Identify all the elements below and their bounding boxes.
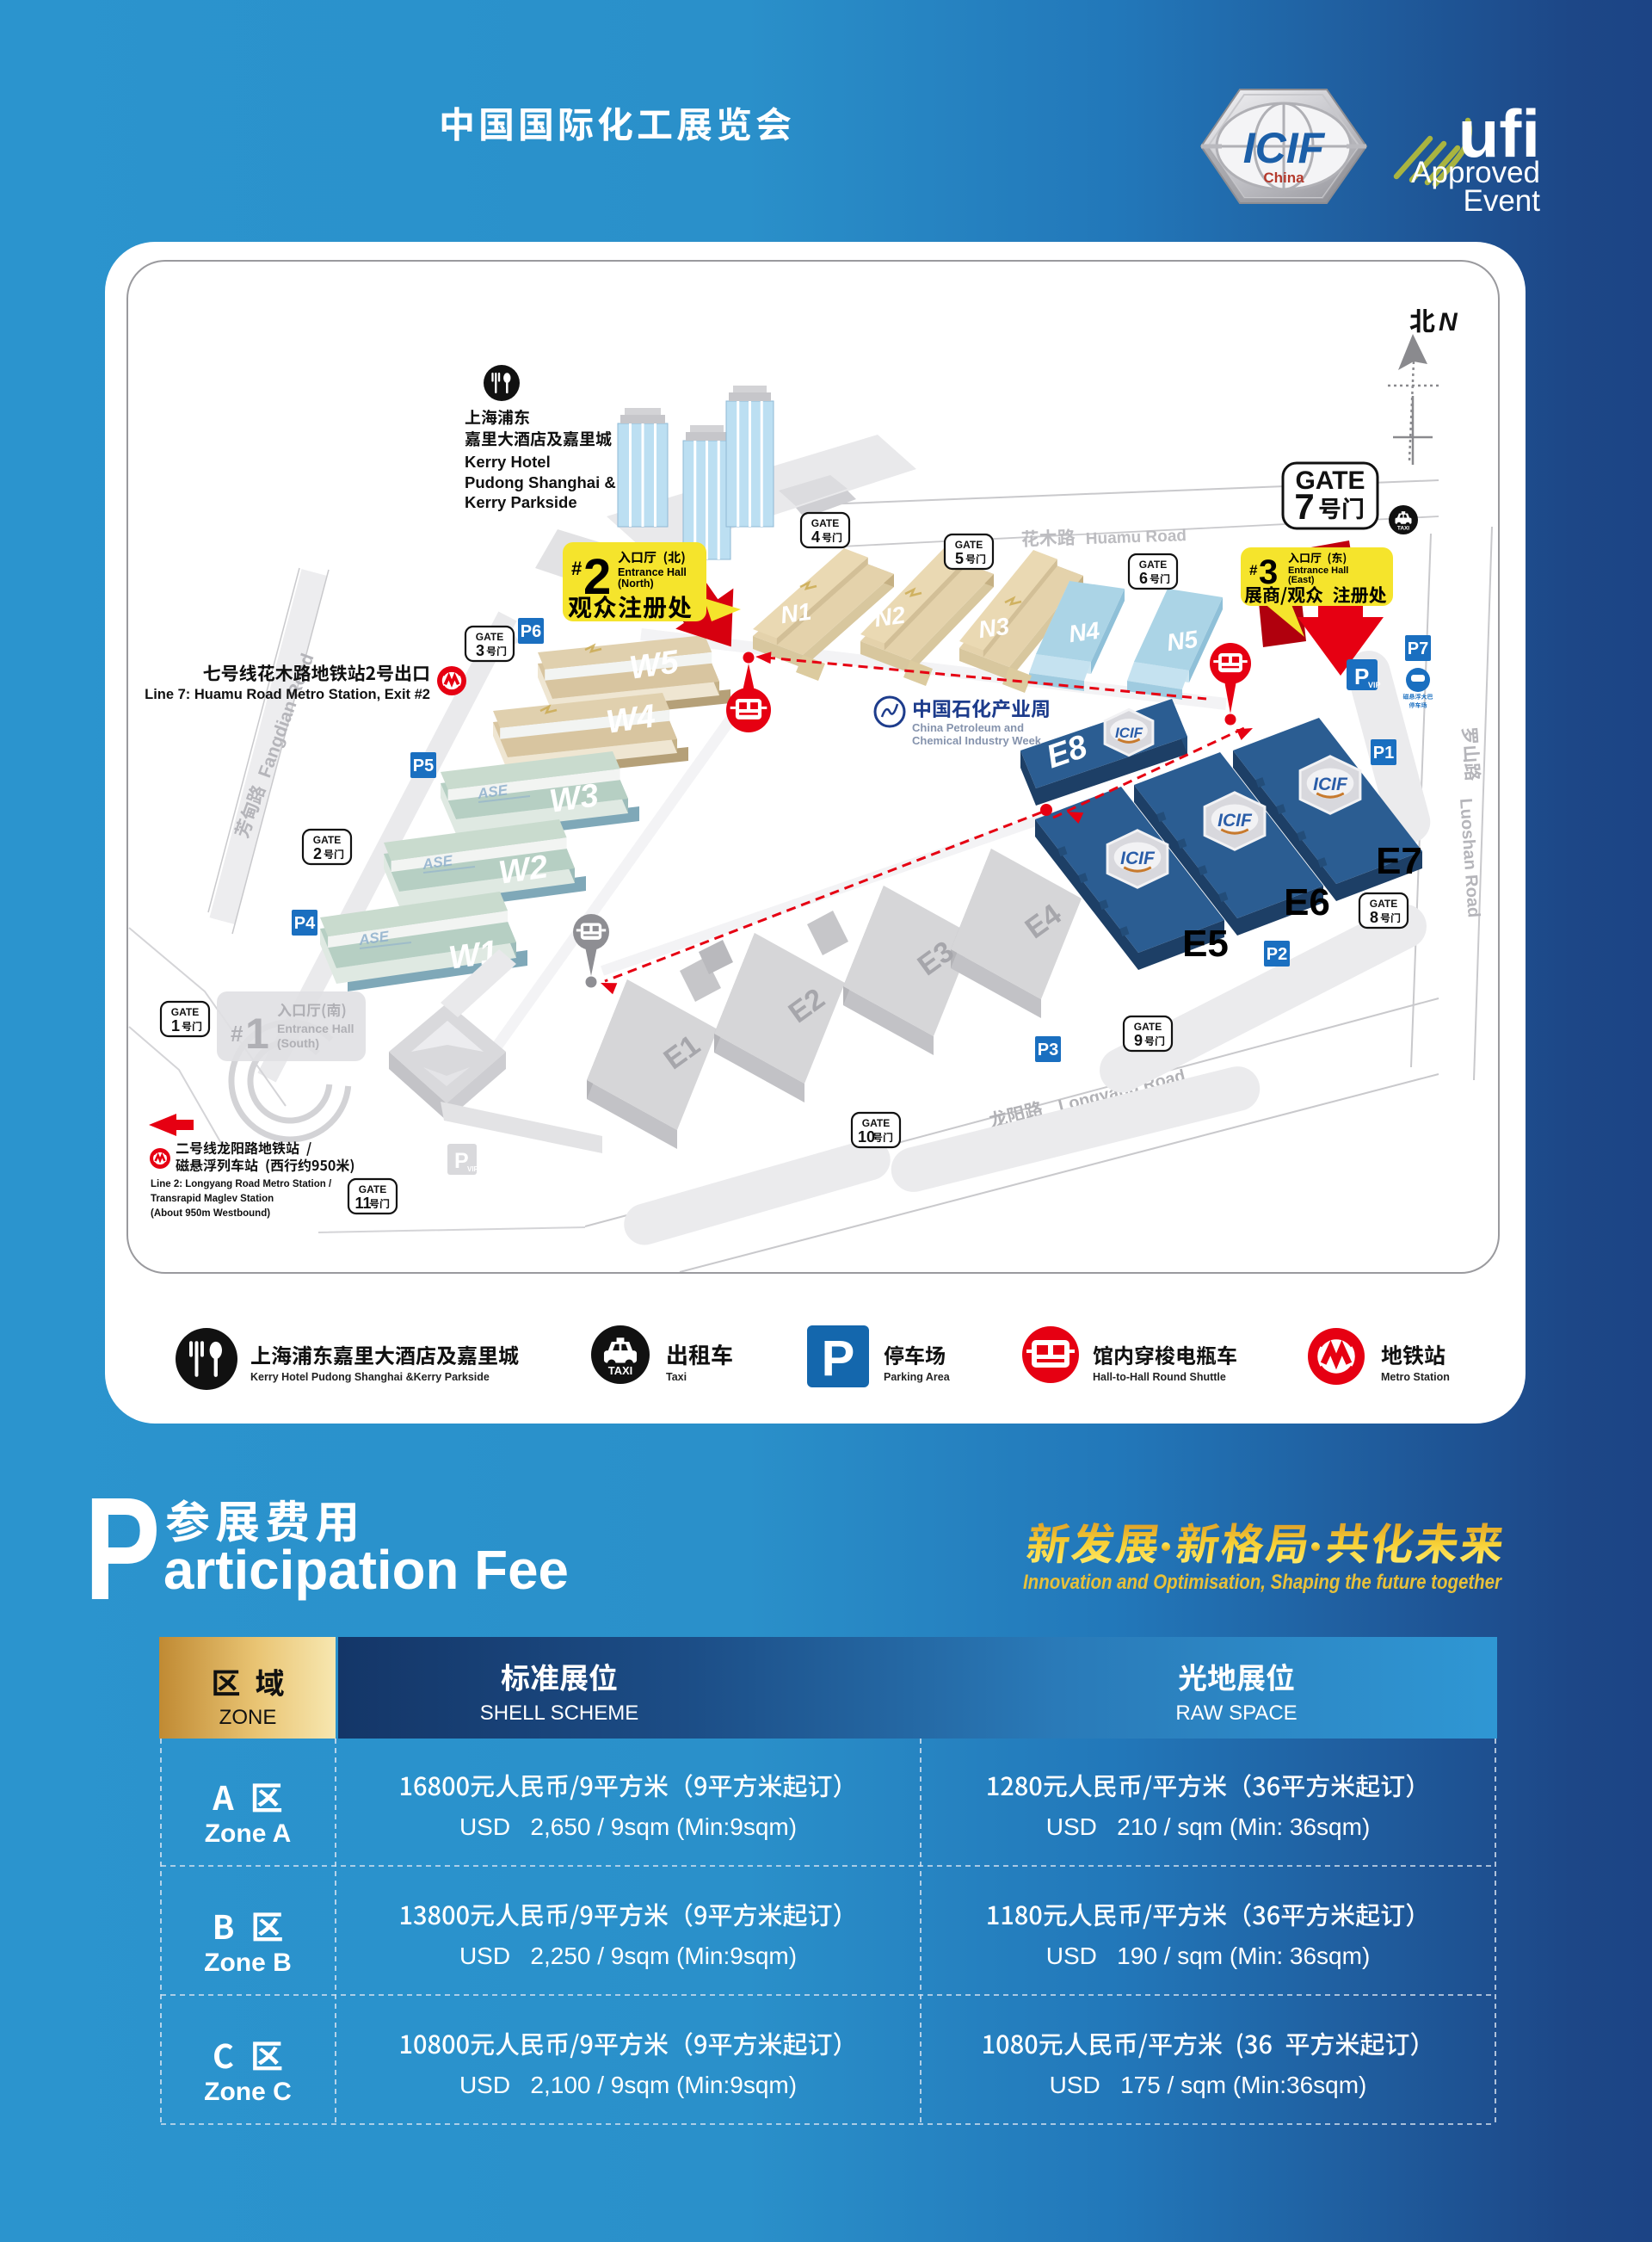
- svg-text:VIP: VIP: [467, 1165, 479, 1173]
- svg-text:Line 2: Longyang Road Metro St: Line 2: Longyang Road Metro Station /: [151, 1179, 332, 1189]
- svg-text:E6: E6: [1284, 881, 1330, 923]
- svg-text:3: 3: [476, 642, 484, 659]
- svg-text:Taxi: Taxi: [666, 1371, 687, 1383]
- svg-text:articipation Fee: articipation Fee: [163, 1539, 569, 1601]
- svg-text:Transrapid Maglev Station: Transrapid Maglev Station: [151, 1194, 274, 1204]
- svg-text:Entrance Hall: Entrance Hall: [618, 566, 687, 578]
- svg-text:USD 2,100 / 9sqm (Min:9sqm): USD 2,100 / 9sqm (Min:9sqm): [459, 2072, 797, 2098]
- svg-text:E5: E5: [1182, 923, 1229, 965]
- svg-text:VIP: VIP: [1368, 681, 1381, 689]
- svg-text:N1: N1: [779, 598, 813, 629]
- svg-text:Kerry Hotel Pudong Shanghai &K: Kerry Hotel Pudong Shanghai &Kerry Parks…: [250, 1371, 490, 1383]
- svg-text:Innovation and Optimisation, S: Innovation and Optimisation, Shaping the…: [1023, 1571, 1502, 1594]
- svg-text:ICIF: ICIF: [1120, 849, 1156, 868]
- svg-text:Zone C: Zone C: [204, 2078, 292, 2106]
- svg-text:GATE: GATE: [811, 517, 839, 529]
- svg-text:GATE: GATE: [1139, 559, 1167, 571]
- svg-text:N4: N4: [1067, 617, 1101, 648]
- svg-text:5: 5: [955, 550, 964, 567]
- svg-text:Metro Station: Metro Station: [1381, 1371, 1450, 1383]
- svg-text:China: China: [1263, 170, 1304, 186]
- svg-text:Kerry Parkside: Kerry Parkside: [465, 493, 577, 511]
- svg-text:W5: W5: [627, 644, 681, 687]
- svg-text:P7: P7: [1408, 639, 1428, 658]
- svg-text:P1: P1: [1373, 744, 1394, 763]
- svg-text:W2: W2: [496, 849, 550, 892]
- svg-text:USD 175 / sqm (Min:36sqm): USD 175 / sqm (Min:36sqm): [1050, 2072, 1367, 2098]
- svg-text:China Petroleum and: China Petroleum and: [912, 721, 1024, 734]
- svg-text:Chemical Industry Week: Chemical Industry Week: [912, 734, 1042, 747]
- svg-text:9: 9: [1134, 1032, 1143, 1049]
- svg-text:#: #: [231, 1021, 243, 1047]
- svg-text:N: N: [1439, 308, 1458, 337]
- svg-text:ICIF: ICIF: [1217, 811, 1253, 831]
- svg-text:Hall-to-Hall Round Shuttle: Hall-to-Hall Round Shuttle: [1093, 1371, 1226, 1383]
- svg-text:2: 2: [313, 845, 322, 862]
- svg-text:4: 4: [811, 528, 820, 546]
- svg-text:ZONE: ZONE: [219, 1706, 277, 1729]
- svg-text:GATE: GATE: [359, 1183, 386, 1195]
- svg-text:W4: W4: [604, 698, 657, 741]
- svg-text:(South): (South): [277, 1036, 319, 1050]
- svg-text:GATE: GATE: [862, 1117, 890, 1129]
- svg-text:GATE: GATE: [476, 631, 503, 643]
- svg-text:ICIF: ICIF: [1243, 124, 1326, 172]
- svg-text:Line 7: Huamu Road Metro Stati: Line 7: Huamu Road Metro Station, Exit #…: [145, 687, 430, 702]
- svg-text:(East): (East): [1288, 575, 1315, 585]
- svg-text:P3: P3: [1038, 1041, 1058, 1059]
- svg-text:Pudong Shanghai &: Pudong Shanghai &: [465, 473, 616, 491]
- svg-text:P: P: [84, 1467, 160, 1631]
- svg-text:6: 6: [1139, 570, 1148, 587]
- svg-text:GATE: GATE: [313, 834, 341, 846]
- svg-text:P2: P2: [1267, 945, 1287, 964]
- svg-text:(North): (North): [618, 577, 654, 590]
- svg-text:USD 190 / sqm (Min: 36sqm): USD 190 / sqm (Min: 36sqm): [1046, 1942, 1371, 1969]
- svg-text:N5: N5: [1165, 626, 1199, 657]
- svg-text:SHELL SCHEME: SHELL SCHEME: [480, 1702, 639, 1725]
- svg-text:E7: E7: [1376, 840, 1422, 882]
- svg-text:7: 7: [1294, 486, 1314, 527]
- svg-text:Zone A: Zone A: [205, 1819, 292, 1848]
- svg-text:GATE: GATE: [171, 1006, 199, 1018]
- svg-text:1: 1: [171, 1017, 180, 1035]
- svg-text:P5: P5: [413, 757, 434, 775]
- svg-text:USD 2,650 / 9sqm (Min:9sqm): USD 2,650 / 9sqm (Min:9sqm): [459, 1813, 797, 1840]
- svg-text:Kerry Hotel: Kerry Hotel: [465, 453, 551, 471]
- svg-text:Event: Event: [1464, 184, 1541, 218]
- svg-text:#: #: [1249, 562, 1258, 578]
- svg-text:USD 2,250 / 9sqm (Min:9sqm): USD 2,250 / 9sqm (Min:9sqm): [459, 1942, 797, 1969]
- svg-text:3: 3: [1259, 553, 1278, 591]
- svg-text:TAXI: TAXI: [1397, 526, 1409, 532]
- svg-text:1: 1: [245, 1010, 269, 1058]
- svg-text:RAW SPACE: RAW SPACE: [1175, 1702, 1297, 1725]
- svg-text:(About 950m Westbound): (About 950m Westbound): [151, 1208, 270, 1219]
- svg-text:USD 210 / sqm (Min: 36sqm): USD 210 / sqm (Min: 36sqm): [1046, 1813, 1371, 1840]
- svg-text:GATE: GATE: [1370, 898, 1397, 910]
- svg-text:11: 11: [354, 1195, 371, 1212]
- svg-text:ICIF: ICIF: [1313, 775, 1348, 794]
- svg-text:N2: N2: [872, 602, 907, 633]
- svg-text:Huamu Road: Huamu Road: [1085, 527, 1187, 548]
- svg-text:P6: P6: [521, 622, 541, 641]
- svg-text:P: P: [1354, 664, 1369, 689]
- svg-text:P: P: [822, 1331, 855, 1387]
- svg-text:#: #: [571, 558, 582, 579]
- svg-text:GATE: GATE: [955, 539, 983, 551]
- svg-text:TAXI: TAXI: [608, 1364, 632, 1377]
- svg-text:N3: N3: [977, 613, 1011, 644]
- svg-text:GATE: GATE: [1134, 1021, 1162, 1033]
- svg-text:P4: P4: [294, 914, 316, 933]
- svg-text:W3: W3: [547, 777, 601, 820]
- svg-text:Zone B: Zone B: [204, 1949, 292, 1977]
- svg-text:Entrance Hall: Entrance Hall: [277, 1022, 354, 1035]
- svg-text:8: 8: [1370, 909, 1378, 926]
- svg-text:10: 10: [858, 1128, 875, 1146]
- svg-text:Parking Area: Parking Area: [884, 1371, 951, 1383]
